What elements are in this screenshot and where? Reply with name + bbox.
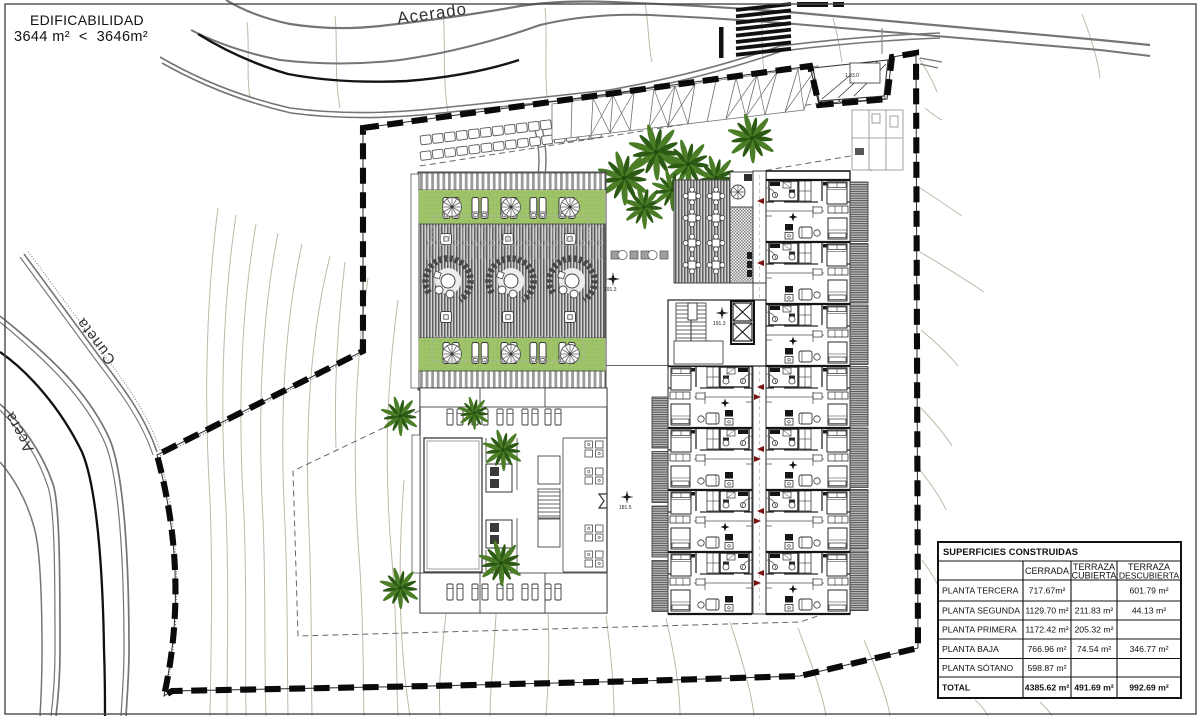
svg-text:PLANTA TERCERA: PLANTA TERCERA	[942, 586, 1019, 596]
svg-text:SUPERFICIES CONSTRUIDAS: SUPERFICIES CONSTRUIDAS	[943, 547, 1078, 557]
svg-text:CUBIERTA: CUBIERTA	[1072, 571, 1117, 581]
svg-text:1172.42 m²: 1172.42 m²	[1025, 625, 1068, 635]
svg-text:191.3: 191.3	[713, 321, 726, 327]
svg-text:491.69 m²: 491.69 m²	[1074, 683, 1114, 693]
svg-text:191.3: 191.3	[604, 287, 617, 293]
svg-text:601.79 m²: 601.79 m²	[1129, 586, 1168, 596]
svg-text:1.83.0: 1.83.0	[845, 73, 859, 79]
svg-text:4385.62 m²: 4385.62 m²	[1025, 683, 1070, 693]
svg-text:PLANTA BAJA: PLANTA BAJA	[942, 644, 999, 654]
svg-text:DESCUBIERTA: DESCUBIERTA	[1119, 571, 1180, 581]
svg-text:598.87 m²: 598.87 m²	[1027, 663, 1066, 673]
svg-text:1129.70 m²: 1129.70 m²	[1025, 606, 1068, 616]
svg-text:TOTAL: TOTAL	[942, 683, 971, 693]
svg-text:346.77 m²: 346.77 m²	[1129, 644, 1168, 654]
svg-text:PLANTA PRIMERA: PLANTA PRIMERA	[942, 625, 1017, 635]
svg-text:717.67m²: 717.67m²	[1029, 586, 1066, 596]
svg-text:205.32 m²: 205.32 m²	[1074, 625, 1113, 635]
svg-text:PLANTA SÓTANO: PLANTA SÓTANO	[942, 663, 1013, 673]
svg-text:181.5: 181.5	[619, 505, 632, 511]
svg-text:44.13 m²: 44.13 m²	[1132, 606, 1166, 616]
svg-text:PLANTA SEGUNDA: PLANTA SEGUNDA	[942, 606, 1020, 616]
svg-text:CERRADA: CERRADA	[1025, 566, 1069, 576]
svg-text:211.83 m²: 211.83 m²	[1075, 606, 1114, 616]
svg-text:766.96 m²: 766.96 m²	[1027, 644, 1066, 654]
svg-text:EDIFICABILIDAD: EDIFICABILIDAD	[30, 12, 144, 28]
svg-text:992.69 m²: 992.69 m²	[1129, 683, 1169, 693]
svg-text:74.54 m²: 74.54 m²	[1077, 644, 1111, 654]
svg-text:3644 m² < 3646m²: 3644 m² < 3646m²	[14, 29, 148, 45]
